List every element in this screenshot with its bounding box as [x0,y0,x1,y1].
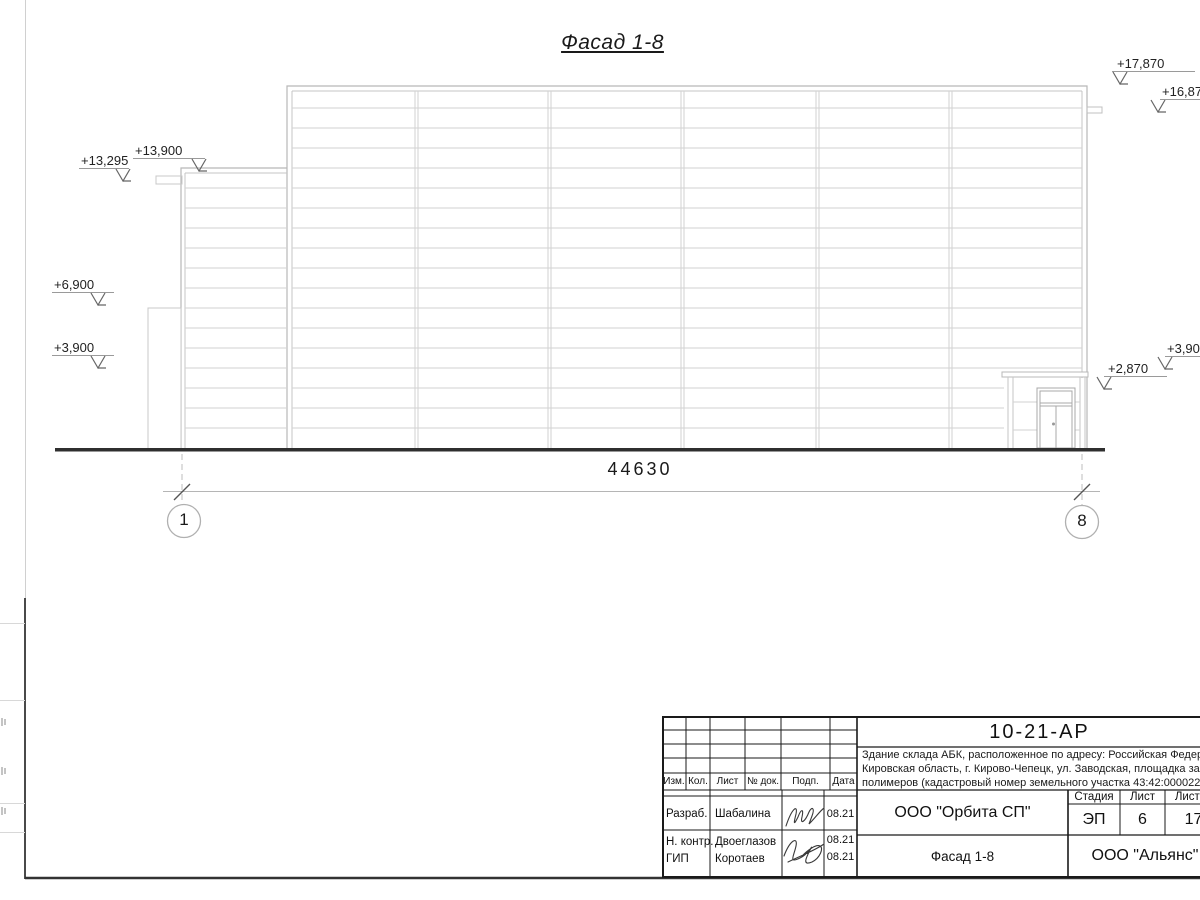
elevation-value: +16,870 [1160,84,1200,99]
elevation-mark: +6,900 [52,277,114,293]
elevation-marker-icon [1150,99,1166,113]
signer-date: 08.21 [824,798,857,830]
facade-main-block [287,86,1102,450]
col-data: Дата [830,773,857,790]
description-line: Здание склада АБК, расположенное по адре… [862,749,1200,763]
elevation-mark: +3,900 [52,340,114,356]
signer-role: ГИП [666,850,712,868]
sheet-title: Фасад 1-8 [857,835,1068,877]
col-ndok: № док. [745,773,781,790]
signature-scribble [778,830,828,876]
col-kol: Кол. [686,773,710,790]
stage-label: Стадия [1068,790,1120,804]
elevation-mark: +3,900 [1165,341,1200,357]
signature-scribble [782,800,826,830]
dimension-total: 44630 [570,459,710,480]
stage-value: ЭП [1068,804,1120,835]
elevation-marker-icon [90,355,106,369]
axis-label-8: 8 [1066,511,1098,531]
elevation-mark: +16,870 [1160,84,1200,100]
contractor-org: ООО "Альянс" [1068,835,1200,877]
elevation-value: +2,870 [1104,361,1148,376]
sheets-label: Листов [1165,790,1200,804]
project-description: Здание склада АБК, расположенное по адре… [862,749,1200,791]
elevation-mark: +13,900 [133,143,205,159]
elevation-mark: +17,870 [1112,56,1195,72]
signer-date: 08.21 [824,832,857,848]
elevation-value: +17,870 [1112,56,1164,71]
elevation-marker-icon [90,292,106,306]
elevation-marker-icon [191,158,207,172]
elevation-mark: +13,295 [79,153,129,169]
panel-lines-vertical [415,91,952,448]
sheets-value: 17 [1165,804,1200,835]
elevation-marker-icon [1112,71,1128,85]
margin-text-fragment [2,718,5,815]
signer-name: Коротаев [715,850,781,868]
signer-date: 08.21 [824,849,857,865]
elevation-value: +13,900 [133,143,182,158]
sheet-label: Лист [1120,790,1165,804]
signer-name: Двоеглазов [715,833,781,851]
elevation-marker-icon [115,168,131,182]
signer-name: Шабалина [715,798,781,830]
elevation-value: +13,295 [79,153,128,168]
signer-role: Разраб. [666,798,710,830]
axis-label-1: 1 [168,510,200,530]
elevation-mark: +2,870 [1104,361,1167,377]
annex-left [148,308,181,450]
elevation-value: +3,900 [52,340,94,355]
drawing-sheet: { "drawing": { "view_title": "Фасад 1-8"… [0,0,1200,900]
title-block: Изм. Кол. Лист № док. Подп. Дата Разраб.… [662,716,1200,878]
design-org: ООО "Орбита СП" [857,790,1068,835]
sheet-value: 6 [1120,804,1165,835]
ground-line [55,448,1105,452]
col-izm: Изм. [662,773,686,790]
col-list: Лист [710,773,745,790]
view-title: Фасад 1-8 [540,31,685,55]
doc-number: 10-21-АР [857,718,1200,746]
door-handle [1052,423,1055,426]
entrance-porch [1002,372,1088,449]
description-line: полимеров (кадастровый номер земельного … [862,777,1200,791]
elevation-marker-icon [1096,376,1112,390]
gutter-stub [1087,107,1102,113]
description-line: Кировская область, г. Кирово-Чепецк, ул.… [862,763,1200,777]
signer-role: Н. контр. [666,833,712,851]
elevation-value: +3,900 [1165,341,1200,356]
parapet-stub [156,176,182,184]
canopy [1002,372,1088,377]
col-podp: Подп. [781,773,830,790]
elevation-value: +6,900 [52,277,94,292]
panel-lines-horizontal [292,108,1082,428]
